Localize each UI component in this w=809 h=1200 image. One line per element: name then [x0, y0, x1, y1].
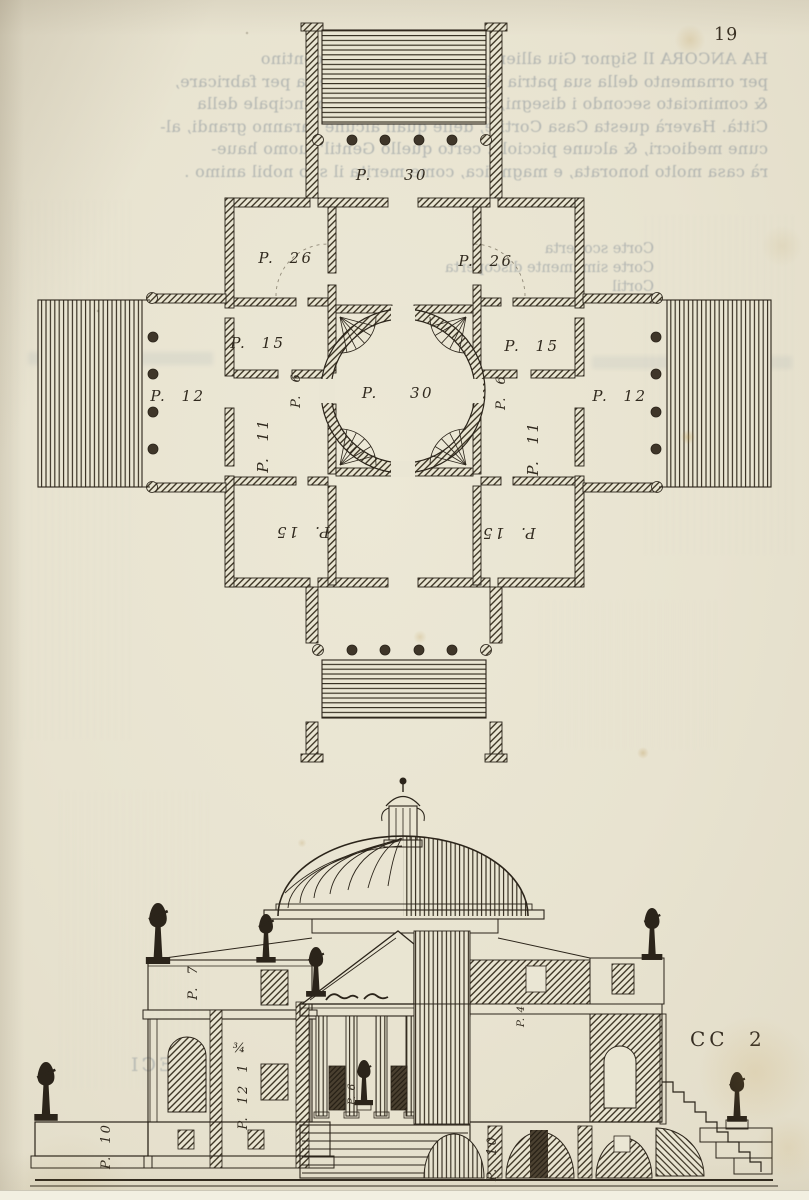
hall-opening-south: [391, 461, 415, 477]
dark-doorway: [391, 1066, 407, 1110]
hall-opening-east: [467, 379, 483, 403]
finial-ball: [400, 778, 407, 785]
book-page: HA ANCORA Il Signor Giu alliere, & Genti…: [0, 0, 809, 1200]
vault-window: [614, 1136, 630, 1152]
statue: [727, 1072, 747, 1122]
dim-label: P. 15: [503, 337, 559, 355]
right-section: [470, 958, 666, 1124]
dim-label: P. 15: [229, 334, 285, 352]
dim-label: P. 6: [494, 374, 509, 411]
pier: [578, 1126, 592, 1178]
villa-plan: P. 30 P. 26 P. 26 P. 15 P. 15 P. 12 P. 1…: [38, 23, 771, 762]
villa-section: P. 7 ¾ P. 12 1 P. 6 P. 4 P. 10 P. 10: [30, 778, 778, 1187]
dim-label: P. 11: [254, 417, 272, 473]
page-number: 19: [714, 25, 738, 45]
dim-label: P. 30: [355, 166, 428, 184]
statue: [642, 908, 663, 960]
left-wing: [143, 960, 317, 1122]
dome-ribs: [285, 838, 402, 908]
interior-arch-niche: [604, 1046, 636, 1108]
dim-label: P. 4: [515, 1005, 527, 1028]
hall-opening-west: [319, 379, 335, 403]
dim-label: P. 15: [480, 524, 536, 542]
quire-signature: CC 2: [690, 1027, 766, 1051]
statue: [256, 914, 275, 963]
column: [376, 1016, 387, 1116]
dim-label: P. 6: [346, 1083, 358, 1106]
dim-label: P. 12: [591, 387, 647, 405]
dome: [264, 836, 544, 919]
dim-label: P. 12: [149, 387, 205, 405]
hall-wall-cut-upper: [414, 931, 470, 1004]
cut-wall: [210, 1010, 222, 1168]
entablature-right: [470, 1004, 662, 1014]
pilaster: [150, 1019, 157, 1122]
page-bottom-edge: [0, 1190, 809, 1200]
dim-label: P. 11: [524, 420, 542, 476]
attic-opening: [526, 966, 546, 992]
plan-right-steps: [667, 300, 771, 487]
terrace-wall: [35, 1122, 148, 1156]
right-attic-window: [612, 964, 634, 994]
dim-label: P. 15: [274, 523, 330, 541]
basement-window: [248, 1130, 264, 1149]
dim-label: ¾: [233, 1041, 248, 1056]
basement-window: [178, 1130, 194, 1149]
dim-label: P. 30: [361, 384, 434, 402]
quarter-vault: [656, 1128, 704, 1176]
plan-right-columns: [651, 293, 663, 493]
terrace-base: [31, 1156, 152, 1168]
plan-top-columns: [313, 135, 492, 146]
statue: [34, 1062, 57, 1121]
vault-dark-core: [530, 1130, 548, 1178]
wall-window: [261, 1064, 288, 1100]
statue: [146, 903, 170, 964]
dim-label: P. 12 1: [236, 1062, 251, 1130]
dark-doorway: [329, 1066, 345, 1110]
dim-label: P. 26: [457, 252, 513, 270]
plan-bottom-steps: [322, 660, 486, 718]
hall-wall-cut: [414, 1004, 470, 1124]
arched-niche: [168, 1037, 206, 1112]
lantern-cupola: [386, 797, 420, 807]
cornice: [143, 1010, 317, 1019]
dim-label: P. 6: [289, 372, 304, 409]
cut-wall: [296, 1002, 309, 1168]
engraving: P. 30 P. 26 P. 26 P. 15 P. 15 P. 12 P. 1…: [0, 0, 809, 1200]
dim-label: P. 26: [257, 249, 313, 267]
dim-label: P. 10: [485, 1135, 500, 1182]
plan-bottom-columns: [313, 645, 492, 656]
dim-label: P. 7: [186, 964, 201, 1001]
roof-slope-right: [498, 938, 590, 958]
plan-top-steps: [322, 30, 486, 124]
dim-label: P. 10: [99, 1123, 114, 1170]
plan-left-steps: [38, 300, 142, 487]
attic-window: [261, 970, 288, 1005]
column: [316, 1016, 327, 1116]
roof-slope-left: [150, 938, 312, 960]
hall-opening-north: [391, 306, 415, 322]
basement: [424, 1126, 704, 1178]
